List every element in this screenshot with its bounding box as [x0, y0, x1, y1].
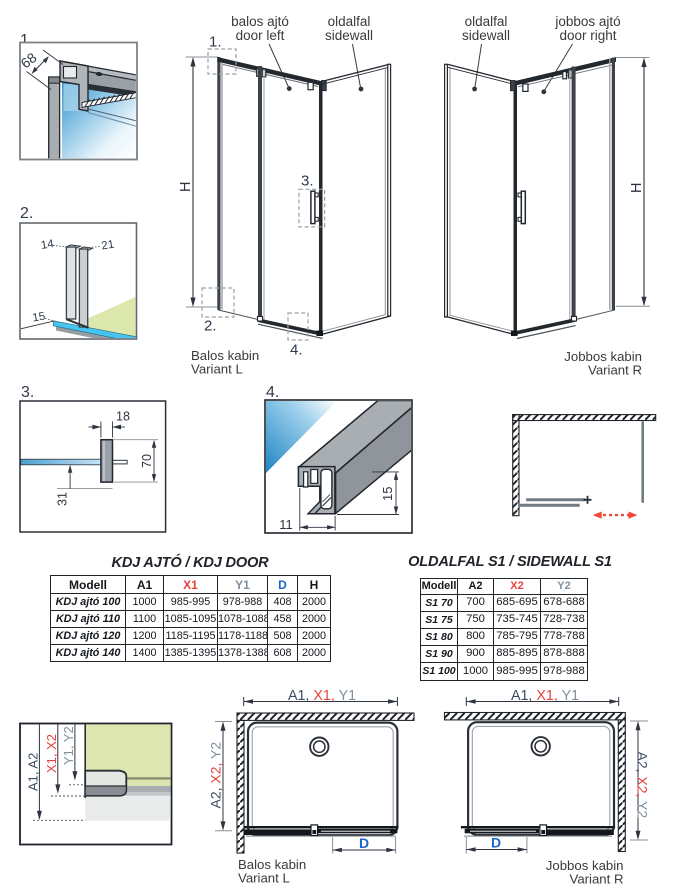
svg-text:31: 31	[56, 492, 70, 506]
svg-text:D: D	[491, 835, 501, 851]
svg-text:A2, X2, Y2: A2, X2, Y2	[635, 752, 651, 819]
svg-text:21: 21	[101, 239, 116, 253]
svg-text:11: 11	[279, 517, 293, 532]
svg-text:15: 15	[32, 311, 47, 325]
svg-text:4.: 4.	[290, 342, 303, 359]
svg-text:1.: 1.	[209, 34, 222, 51]
svg-text:sidewall: sidewall	[462, 28, 510, 43]
svg-text:door left: door left	[236, 28, 285, 43]
svg-text:18: 18	[116, 410, 130, 424]
svg-text:Variant R: Variant R	[570, 872, 624, 887]
svg-text:X1, X2: X1, X2	[44, 734, 59, 773]
svg-text:jobbos ajtó: jobbos ajtó	[554, 14, 620, 29]
svg-text:70: 70	[140, 454, 154, 468]
svg-text:door right: door right	[559, 28, 616, 43]
svg-text:A1, A2: A1, A2	[26, 753, 41, 791]
svg-text:H: H	[178, 182, 194, 192]
svg-text:balos ajtó: balos ajtó	[231, 14, 289, 29]
svg-text:Variant R: Variant R	[588, 363, 642, 378]
svg-text:D: D	[359, 835, 369, 851]
svg-text:oldalfal: oldalfal	[328, 14, 371, 29]
svg-text:H: H	[629, 183, 645, 193]
svg-text:A2, X2, Y2: A2, X2, Y2	[208, 742, 224, 809]
svg-text:2.: 2.	[20, 205, 33, 222]
svg-text:Variant L: Variant L	[238, 871, 290, 886]
svg-text:Y1, Y2: Y1, Y2	[61, 726, 76, 765]
svg-text:2.: 2.	[204, 318, 217, 335]
svg-text:sidewall: sidewall	[325, 28, 373, 43]
svg-text:14: 14	[40, 238, 55, 252]
svg-text:3.: 3.	[21, 384, 34, 401]
svg-text:3.: 3.	[301, 173, 314, 190]
svg-text:15: 15	[380, 487, 395, 501]
svg-text:4.: 4.	[266, 384, 279, 401]
svg-text:oldalfal: oldalfal	[465, 14, 508, 29]
svg-text:Variant L: Variant L	[191, 362, 243, 377]
